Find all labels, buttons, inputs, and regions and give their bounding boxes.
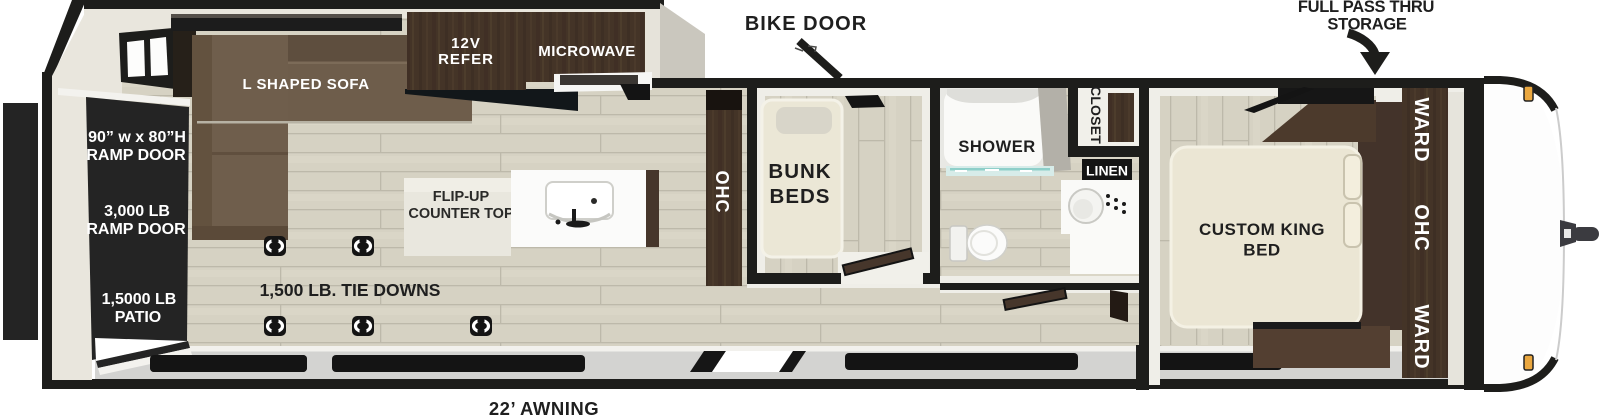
svg-text:FLIP-UP: FLIP-UP <box>433 189 490 205</box>
svg-text:1,5000 LB: 1,5000 LB <box>102 291 177 308</box>
svg-text:PATIO: PATIO <box>115 309 162 326</box>
svg-text:FULL PASS THRU: FULL PASS THRU <box>1298 0 1434 16</box>
svg-text:WARD: WARD <box>1410 304 1432 369</box>
svg-text:RAMP DOOR: RAMP DOOR <box>86 221 186 238</box>
svg-text:MICROWAVE: MICROWAVE <box>538 43 636 60</box>
svg-text:COUNTER TOP: COUNTER TOP <box>408 206 514 222</box>
svg-text:OHC: OHC <box>1410 204 1432 251</box>
svg-text:REFER: REFER <box>438 51 494 68</box>
svg-text:L SHAPED SOFA: L SHAPED SOFA <box>242 76 369 93</box>
svg-text:22’ AWNING: 22’ AWNING <box>489 398 599 415</box>
svg-text:3,000 LB: 3,000 LB <box>104 203 170 220</box>
svg-text:BIKE DOOR: BIKE DOOR <box>745 13 867 35</box>
svg-text:12V: 12V <box>451 35 481 52</box>
svg-text:LINEN: LINEN <box>1086 163 1128 179</box>
svg-text:90” w x 80”H: 90” w x 80”H <box>88 129 186 146</box>
svg-text:WARD: WARD <box>1410 97 1432 162</box>
svg-text:CUSTOM KING: CUSTOM KING <box>1199 220 1325 239</box>
svg-text:BED: BED <box>1243 241 1280 260</box>
svg-text:OHC: OHC <box>712 171 732 214</box>
svg-text:STORAGE: STORAGE <box>1327 16 1406 34</box>
svg-text:SHOWER: SHOWER <box>958 138 1035 156</box>
svg-text:1,500 LB. TIE DOWNS: 1,500 LB. TIE DOWNS <box>260 280 441 300</box>
svg-text:RAMP DOOR: RAMP DOOR <box>86 147 186 164</box>
svg-text:BUNK: BUNK <box>768 160 831 183</box>
svg-text:CLOSET: CLOSET <box>1088 86 1104 144</box>
svg-text:BEDS: BEDS <box>770 185 831 208</box>
